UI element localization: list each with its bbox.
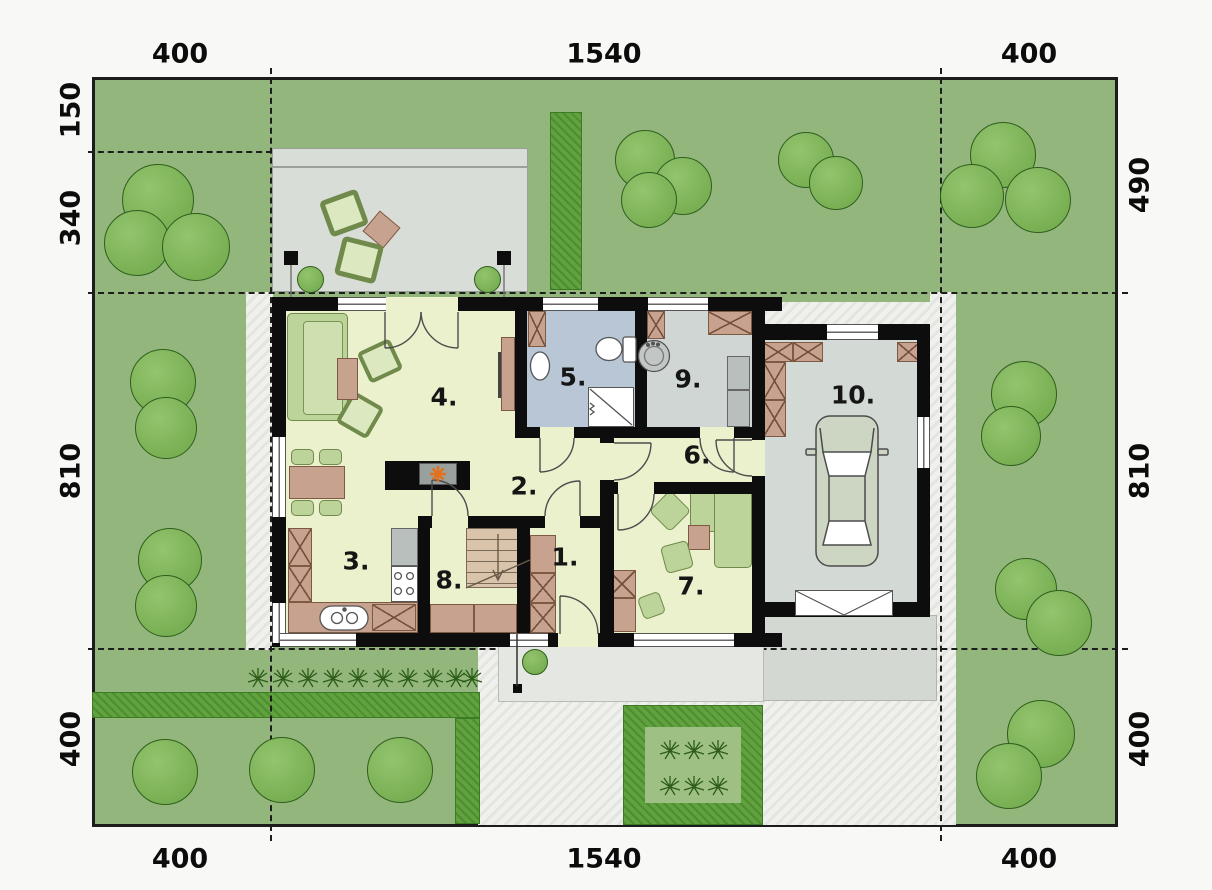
- room-label-1: 1.: [552, 543, 579, 572]
- room-label-5: 5.: [560, 363, 587, 392]
- kitchen-fixtures: [320, 573, 413, 630]
- dim-top-400: 400: [152, 39, 208, 70]
- room-label-10: 10.: [831, 381, 875, 410]
- planter-plants: [660, 740, 728, 795]
- dim-top-1540: 1540: [566, 39, 641, 70]
- garage-door-lines: [796, 591, 892, 615]
- dim-top-400b: 400: [1001, 39, 1057, 70]
- dim-bottom-400: 400: [152, 844, 208, 875]
- room-label-8: 8.: [436, 566, 463, 595]
- site-plan: 1. 2. 3. 4. 5. 6. 7. 8. 9. 10. 400 1540 …: [0, 0, 1212, 890]
- room-label-3: 3.: [343, 547, 370, 576]
- car: [806, 416, 888, 566]
- room-label-4: 4.: [431, 383, 458, 412]
- dim-bottom-1540: 1540: [566, 844, 641, 875]
- dim-bottom-400b: 400: [1001, 844, 1057, 875]
- room-label-9: 9.: [675, 365, 702, 394]
- dim-right-490: 490: [1125, 157, 1156, 213]
- room-label-2: 2.: [511, 472, 538, 501]
- plan-linework: [0, 0, 1212, 890]
- dim-right-400: 400: [1125, 711, 1156, 767]
- dim-right-810: 810: [1125, 443, 1156, 499]
- stairs-lines: [466, 534, 530, 588]
- post-struts: [291, 265, 504, 297]
- dim-left-340: 340: [56, 190, 87, 246]
- room-label-7: 7.: [678, 572, 705, 601]
- plant-row: [248, 668, 482, 687]
- utility-fixtures: [639, 341, 670, 372]
- dim-left-400: 400: [56, 711, 87, 767]
- room-label-6: 6.: [684, 441, 711, 470]
- dim-left-810: 810: [56, 443, 87, 499]
- dim-left-150: 150: [56, 82, 87, 138]
